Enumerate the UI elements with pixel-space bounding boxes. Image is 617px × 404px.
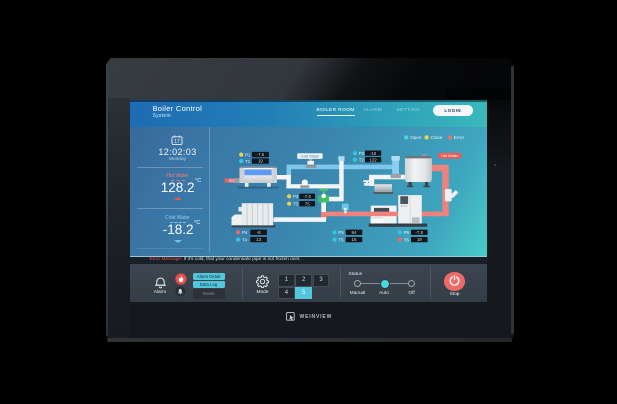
svg-text:P3: P3	[293, 194, 299, 199]
svg-text:Close: Close	[430, 135, 442, 140]
svg-text:15: 15	[351, 237, 356, 242]
svg-text:Cold Water: Cold Water	[300, 154, 320, 158]
svg-text:122: 122	[369, 157, 377, 162]
svg-text:T5: T5	[338, 237, 344, 242]
svg-text:17: 17	[174, 139, 180, 145]
svg-text:19: 19	[416, 237, 421, 242]
svg-text:Open: Open	[410, 135, 422, 140]
svg-text:P1: P1	[245, 152, 251, 157]
svg-text:13: 13	[256, 237, 261, 242]
svg-text:P5: P5	[338, 230, 344, 235]
svg-text:-8: -8	[256, 230, 260, 235]
svg-text:-7.5: -7.5	[303, 194, 311, 199]
svg-text:-7.6: -7.6	[256, 152, 264, 157]
svg-text:T3: T3	[293, 202, 299, 207]
svg-text:19: 19	[257, 159, 262, 164]
svg-text:-7.8: -7.8	[415, 230, 423, 235]
svg-text:Error: Error	[453, 135, 464, 140]
svg-text:T1: T1	[245, 159, 251, 164]
svg-text:T6: T6	[403, 237, 409, 242]
svg-text:T4: T4	[242, 237, 248, 242]
svg-text:Hot Water: Hot Water	[441, 154, 459, 158]
svg-text:T2: T2	[358, 158, 364, 163]
svg-text:94: 94	[351, 230, 356, 235]
svg-text:-10: -10	[369, 151, 376, 156]
svg-text:P2: P2	[358, 151, 364, 156]
svg-text:P6: P6	[403, 230, 409, 235]
svg-text:P4: P4	[242, 230, 248, 235]
svg-text:75: 75	[304, 201, 309, 206]
